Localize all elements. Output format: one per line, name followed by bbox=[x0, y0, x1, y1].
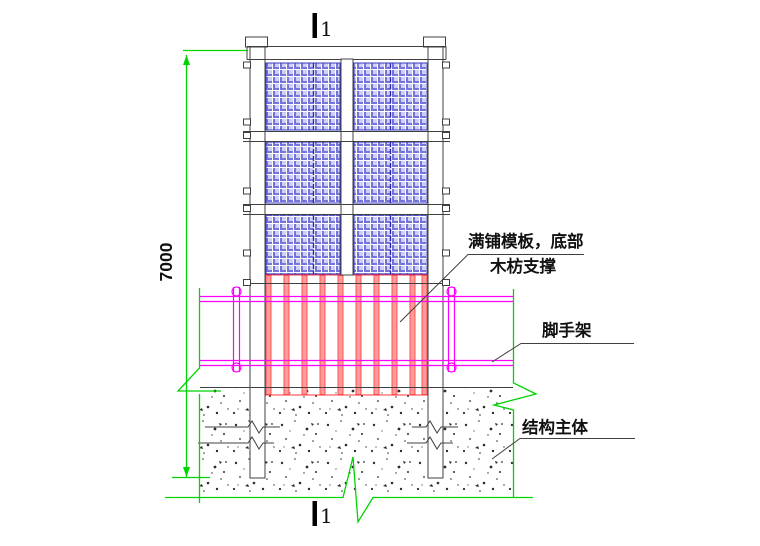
concrete-fill bbox=[200, 387, 513, 496]
left-post-cap bbox=[246, 37, 268, 47]
section-bar-bottom bbox=[313, 501, 318, 526]
callout-formwork-line2: 木枋支撑 bbox=[489, 256, 557, 276]
concrete-structure bbox=[200, 387, 513, 496]
section-number-top: 1 bbox=[320, 17, 333, 41]
scaffold-standard-right bbox=[449, 287, 455, 372]
section-bar-top bbox=[313, 13, 318, 38]
center-post bbox=[341, 59, 353, 275]
scaffold-standard-left bbox=[234, 287, 240, 372]
net-panel bbox=[266, 63, 340, 130]
top-rail bbox=[247, 47, 446, 60]
left-post bbox=[250, 46, 265, 478]
construction-section-drawing: 7000 满铺模板，底部 木枋支撑 脚手架 结构主体 1 1 bbox=[0, 0, 760, 546]
section-number-bottom: 1 bbox=[320, 504, 333, 528]
right-post bbox=[428, 46, 443, 478]
callout-formwork-line1: 满铺模板，底部 bbox=[468, 231, 584, 251]
formwork-red-hatch bbox=[266, 275, 427, 395]
wood-battens bbox=[266, 276, 427, 395]
net-panel bbox=[266, 215, 340, 274]
formwork-area bbox=[266, 275, 427, 395]
net-panel bbox=[266, 142, 340, 203]
dimension-arrow-down bbox=[183, 467, 190, 477]
right-post-cap bbox=[424, 37, 446, 47]
drawing-canvas: 7000 满铺模板，底部 木枋支撑 脚手架 结构主体 1 1 bbox=[0, 0, 760, 546]
callout-structure: 结构主体 bbox=[522, 417, 589, 437]
callout-scaffold: 脚手架 bbox=[542, 320, 592, 340]
dimension-arrow-up bbox=[183, 55, 190, 65]
dimension-value: 7000 bbox=[156, 242, 176, 281]
